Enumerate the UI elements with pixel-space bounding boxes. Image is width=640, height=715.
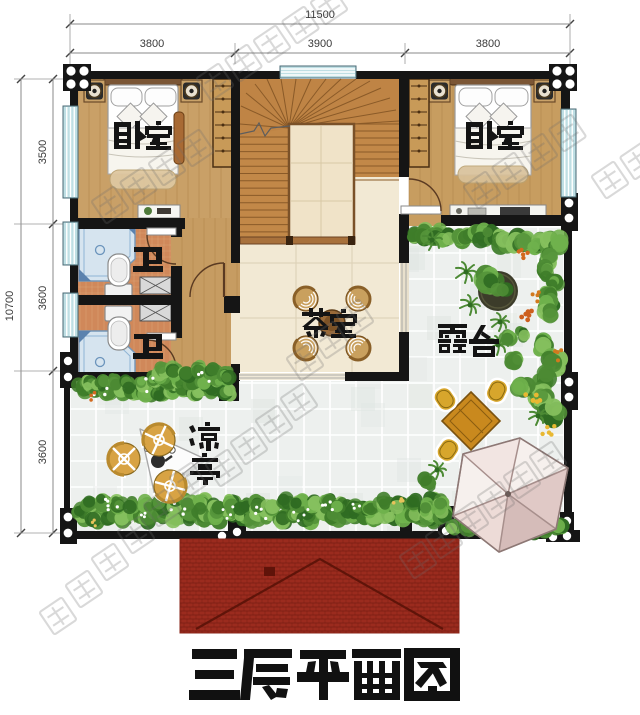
svg-text:3900: 3900 [308, 38, 332, 50]
svg-text:3800: 3800 [476, 38, 500, 50]
svg-text:3800: 3800 [140, 38, 164, 50]
svg-text:3600: 3600 [37, 286, 49, 310]
svg-text:3600: 3600 [37, 440, 49, 464]
svg-text:10700: 10700 [4, 291, 16, 322]
svg-text:3500: 3500 [37, 140, 49, 164]
